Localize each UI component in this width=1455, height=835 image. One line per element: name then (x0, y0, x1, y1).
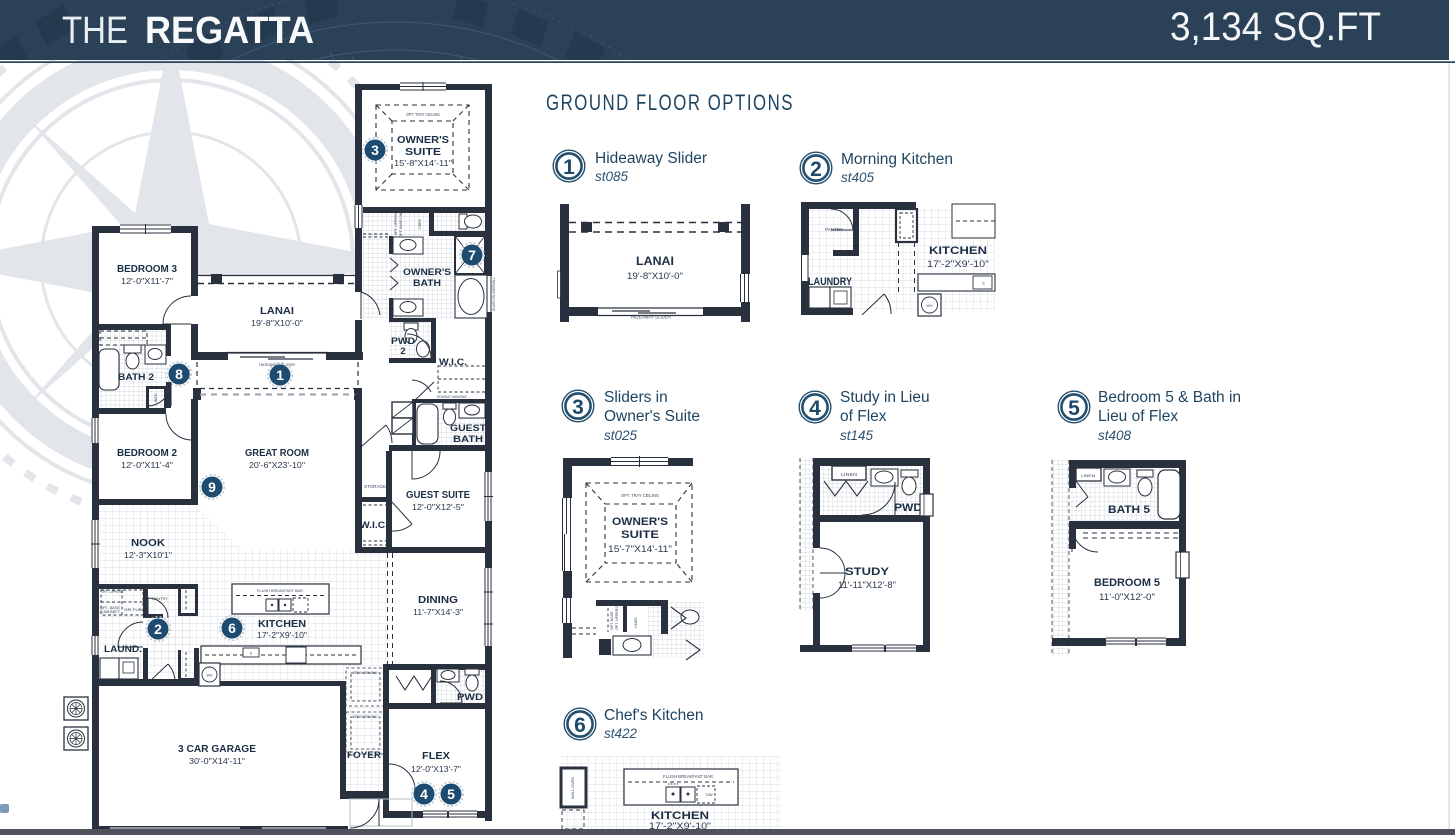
svg-text:LANAI: LANAI (260, 305, 294, 317)
svg-text:BATH: BATH (413, 278, 441, 289)
svg-text:Morning Kitchen: Morning Kitchen (841, 151, 953, 168)
svg-text:12'-0"X11'-7": 12'-0"X11'-7" (121, 276, 173, 286)
svg-text:4: 4 (809, 397, 821, 420)
svg-text:WALL OVEN: WALL OVEN (571, 777, 575, 799)
svg-text:FLEX: FLEX (422, 750, 450, 762)
svg-text:LINEN: LINEN (634, 617, 638, 628)
svg-text:BATH: BATH (453, 434, 483, 445)
svg-text:LINEN: LINEN (418, 218, 422, 229)
svg-text:PANTRY: PANTRY (152, 596, 168, 601)
svg-text:OWNER'S: OWNER'S (397, 134, 449, 146)
svg-text:9: 9 (208, 479, 216, 495)
svg-text:1: 1 (563, 156, 575, 179)
svg-text:KITCHEN: KITCHEN (258, 618, 306, 630)
svg-text:HIDEAWAY SLIDER: HIDEAWAY SLIDER (631, 315, 671, 320)
svg-text:Bedroom 5 & Bath in: Bedroom 5 & Bath in (1098, 389, 1241, 406)
svg-text:OR TUB: OR TUB (124, 608, 143, 612)
svg-text:BATH 5: BATH 5 (1108, 504, 1150, 516)
svg-text:12'-0"X11'-4": 12'-0"X11'-4" (121, 460, 173, 470)
svg-text:LINEN: LINEN (1081, 473, 1095, 478)
svg-text:15'-8"X14'-11": 15'-8"X14'-11" (394, 158, 452, 168)
svg-text:17'-2"X9'-10": 17'-2"X9'-10" (257, 630, 307, 640)
svg-text:19'-8"X10'-0": 19'-8"X10'-0" (627, 271, 683, 282)
svg-text:BEDROOM 5: BEDROOM 5 (1094, 577, 1160, 589)
svg-text:st085: st085 (595, 169, 629, 184)
svg-text:3 CAR GARAGE: 3 CAR GARAGE (178, 743, 256, 755)
svg-text:DW: DW (706, 792, 713, 797)
svg-text:S: S (982, 281, 985, 286)
svg-text:11'-7"X14'-3": 11'-7"X14'-3" (413, 607, 463, 617)
svg-text:2: 2 (400, 346, 405, 356)
svg-text:12'-3"X10'1": 12'-3"X10'1" (124, 550, 172, 560)
svg-text:OWNER'S: OWNER'S (612, 516, 668, 528)
svg-text:11'-11"X12'-8": 11'-11"X12'-8" (838, 580, 896, 591)
svg-text:LINEN: LINEN (154, 393, 158, 404)
svg-text:st405: st405 (841, 170, 875, 185)
svg-text:FLUSH BREAKFAST BAR: FLUSH BREAKFAST BAR (257, 588, 303, 593)
svg-text:st408: st408 (1098, 428, 1132, 443)
svg-text:4: 4 (420, 786, 428, 802)
svg-text:REGATTA: REGATTA (145, 10, 314, 52)
svg-text:Owner's Suite: Owner's Suite (604, 408, 700, 425)
svg-text:OPT. BASE CAB.: OPT. BASE CAB. (399, 211, 403, 237)
svg-text:DOUBLE HANGING: DOUBLE HANGING (437, 395, 467, 399)
svg-text:FLUSH BREAKFAST BAR: FLUSH BREAKFAST BAR (663, 774, 713, 779)
svg-text:OPT. BASE: OPT. BASE (610, 611, 614, 630)
svg-text:3,134 SQ.FT: 3,134 SQ.FT (1170, 5, 1381, 49)
svg-text:5: 5 (447, 786, 455, 802)
svg-text:Study in Lieu: Study in Lieu (840, 389, 930, 406)
svg-text:OPT. UPPERS: OPT. UPPERS (615, 606, 619, 630)
svg-text:3: 3 (572, 396, 584, 419)
svg-text:PWD: PWD (391, 336, 416, 346)
svg-text:THE: THE (62, 10, 128, 52)
svg-text:2: 2 (810, 158, 822, 181)
svg-text:CABINET: CABINET (100, 610, 121, 614)
svg-text:SUITE: SUITE (405, 146, 441, 158)
svg-text:st145: st145 (840, 428, 874, 443)
svg-text:11'-0"X12'-0": 11'-0"X12'-0" (1099, 592, 1155, 603)
svg-text:Hideaway Slider: Hideaway Slider (595, 150, 707, 167)
svg-text:GUEST SUITE: GUEST SUITE (406, 489, 470, 501)
svg-text:1: 1 (276, 367, 284, 383)
svg-text:TRAY CEILING: TRAY CEILING (353, 671, 377, 675)
svg-text:TRAY CEILING: TRAY CEILING (353, 715, 377, 719)
svg-text:OPT. TRAY CEILING: OPT. TRAY CEILING (621, 493, 659, 498)
svg-text:STUDY: STUDY (845, 566, 890, 578)
svg-text:GREAT ROOM: GREAT ROOM (245, 447, 309, 459)
svg-text:Sliders in: Sliders in (604, 389, 668, 406)
svg-text:W.I.C.: W.I.C. (360, 520, 388, 530)
svg-text:OPT. UPPERS: OPT. UPPERS (101, 590, 124, 594)
svg-text:LINEN: LINEN (841, 472, 857, 477)
svg-text:of Flex: of Flex (840, 408, 887, 425)
svg-text:17'-2"X9'-10": 17'-2"X9'-10" (927, 259, 989, 270)
svg-text:GUEST: GUEST (450, 423, 486, 434)
svg-text:12'-0"X13'-7": 12'-0"X13'-7" (411, 764, 461, 774)
svg-text:6: 6 (574, 714, 586, 737)
svg-text:WH: WH (207, 674, 213, 678)
svg-text:GLASS ON KNEEWALL: GLASS ON KNEEWALL (492, 277, 496, 311)
svg-text:5: 5 (1068, 397, 1080, 420)
svg-text:GROUND FLOOR OPTIONS: GROUND FLOOR OPTIONS (546, 90, 794, 115)
svg-text:WH: WH (926, 304, 933, 308)
svg-text:PWD: PWD (457, 692, 483, 703)
svg-text:st025: st025 (604, 428, 638, 443)
svg-text:Lieu of Flex: Lieu of Flex (1098, 408, 1178, 425)
svg-text:15'-7"X14'-11": 15'-7"X14'-11" (608, 544, 672, 555)
svg-text:7: 7 (468, 247, 476, 263)
svg-text:BATH 2: BATH 2 (118, 372, 154, 383)
svg-text:LANAI: LANAI (636, 256, 674, 268)
svg-text:8: 8 (175, 366, 183, 382)
svg-text:DINING: DINING (418, 594, 458, 606)
svg-text:SUITE: SUITE (621, 529, 659, 541)
svg-text:3: 3 (371, 142, 379, 158)
svg-text:2: 2 (154, 621, 162, 637)
svg-text:12'-0"X12'-5": 12'-0"X12'-5" (412, 502, 464, 512)
svg-text:PWD: PWD (894, 502, 922, 514)
svg-text:30'-0"X14'-11": 30'-0"X14'-11" (189, 756, 245, 766)
svg-text:W.I.C.: W.I.C. (439, 357, 467, 367)
svg-text:6: 6 (228, 620, 236, 636)
svg-text:Chef's Kitchen: Chef's Kitchen (604, 707, 703, 724)
svg-text:OPT. UPPERS: OPT. UPPERS (394, 212, 398, 235)
svg-text:KITCHEN: KITCHEN (929, 245, 987, 257)
svg-text:BEDROOM 2: BEDROOM 2 (117, 447, 177, 459)
svg-text:OPT. TRAY CEILING: OPT. TRAY CEILING (406, 112, 440, 117)
svg-text:st422: st422 (604, 726, 638, 741)
svg-text:OWNER'S: OWNER'S (403, 267, 451, 278)
svg-text:BEDROOM 3: BEDROOM 3 (117, 263, 177, 275)
svg-text:20'-6"X23'-10": 20'-6"X23'-10" (249, 460, 305, 470)
svg-text:LAUND.: LAUND. (104, 644, 142, 655)
svg-text:FOYER: FOYER (347, 750, 381, 761)
svg-text:LAUNDRY: LAUNDRY (808, 276, 853, 288)
svg-text:NOOK: NOOK (131, 537, 165, 549)
svg-text:STORAGE: STORAGE (364, 484, 386, 489)
svg-text:19'-8"X10'-0": 19'-8"X10'-0" (251, 318, 303, 328)
